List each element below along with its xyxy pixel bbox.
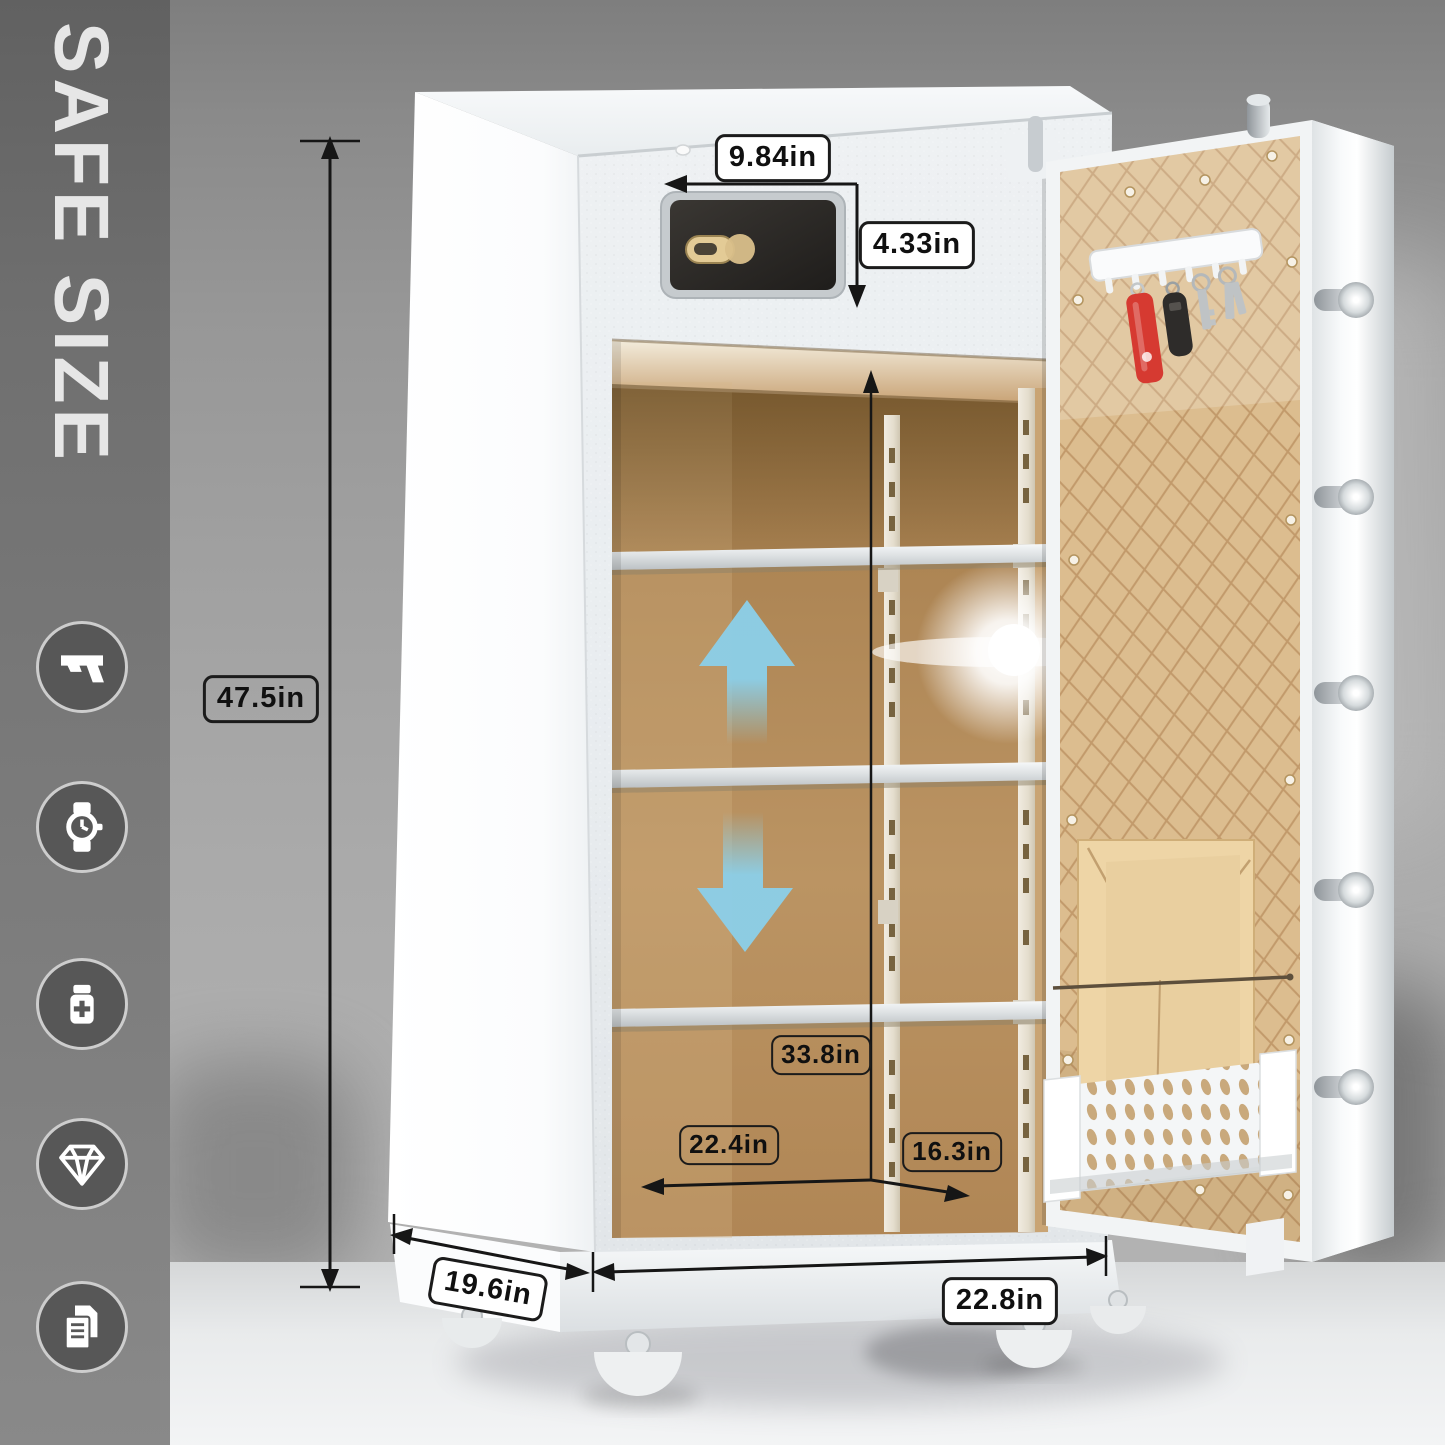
label-interior-height: 33.8in (771, 1035, 871, 1075)
label-interior-width: 22.4in (679, 1125, 779, 1165)
label-keypad-height: 4.33in (859, 221, 975, 269)
label-interior-depth: 16.3in (902, 1132, 1002, 1172)
safe-left-side (388, 92, 595, 1252)
label-keypad-width: 9.84in (715, 134, 831, 182)
door-foot (1246, 1218, 1284, 1276)
door-top-bolt (1247, 94, 1271, 138)
label-safe-height: 47.5in (203, 675, 319, 723)
safe-door (1003, 94, 1394, 1276)
label-safe-width: 22.8in (942, 1277, 1058, 1325)
